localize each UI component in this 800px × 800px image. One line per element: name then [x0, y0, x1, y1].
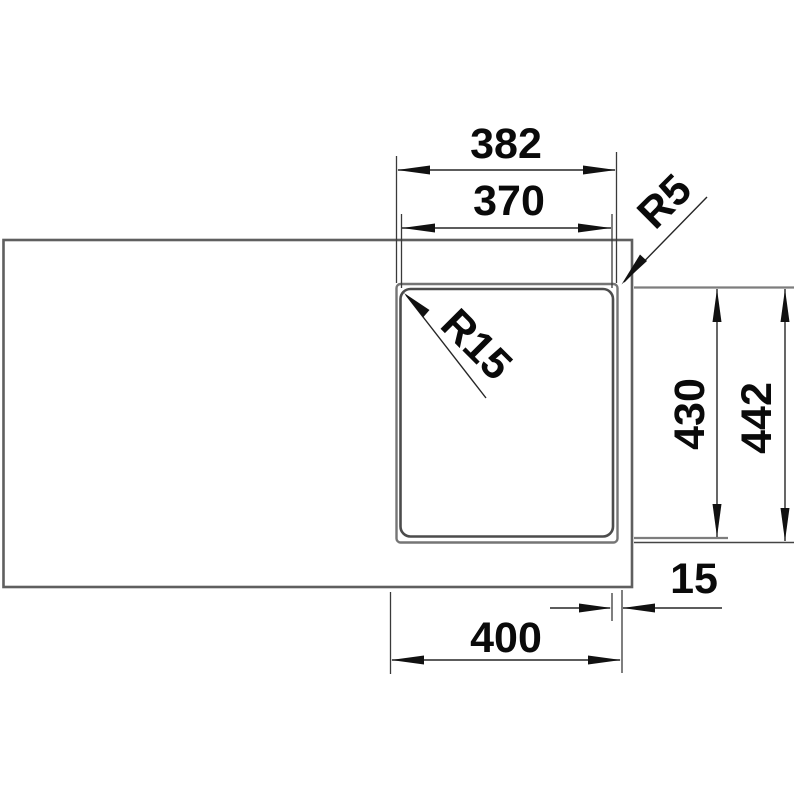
dim-442-label: 442: [733, 382, 781, 454]
sink-bowl-outline: [401, 289, 614, 537]
dim-382-label: 382: [470, 120, 542, 168]
dim-400-label: 400: [470, 614, 542, 662]
dim-370-label: 370: [473, 177, 545, 225]
sink-technical-drawing: 382 370 R5 R15 430 442 15 400: [0, 0, 800, 800]
dim-430-label: 430: [666, 378, 714, 450]
dim-15-label: 15: [670, 555, 718, 603]
sink-technical-drawing-page: 382 370 R5 R15 430 442 15 400: [0, 0, 800, 800]
